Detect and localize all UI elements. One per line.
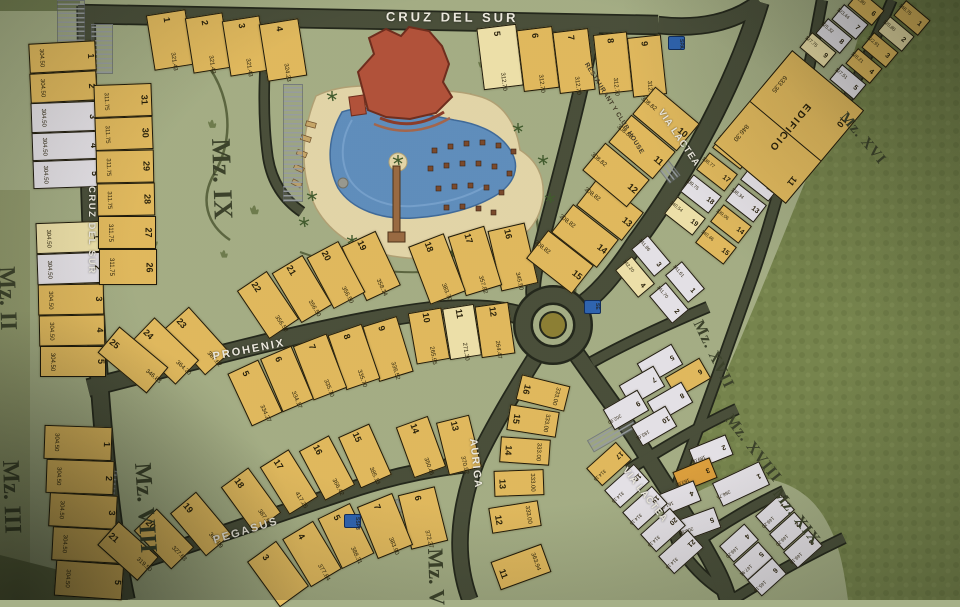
lot-measure: 383.70 xyxy=(440,283,452,302)
lot-measure: 141.61 xyxy=(670,265,683,279)
lot-measure: 312.70 xyxy=(499,72,507,91)
lot-number: 7 xyxy=(566,35,576,41)
lot-number: 16 xyxy=(311,443,324,456)
lot-number: 4 xyxy=(868,68,875,76)
lot: 311.7530 xyxy=(94,116,153,151)
lot-measure: 138.77 xyxy=(700,158,715,171)
lot-measure: 388.31 xyxy=(349,546,362,565)
lot-measure: 308.82 xyxy=(533,240,551,256)
lot: 304.501 xyxy=(43,425,112,461)
block-label: Mz. V xyxy=(424,548,448,606)
lot-number: 7 xyxy=(650,375,657,383)
lot: 311.7531 xyxy=(93,83,152,118)
lot-number: 21 xyxy=(107,531,120,544)
lot-number: 3 xyxy=(261,553,271,562)
lot-number: 2 xyxy=(672,308,680,315)
lot-number: 3 xyxy=(107,510,116,515)
lot-measure: 308.82 xyxy=(558,214,576,230)
lot-measure: 139.06 xyxy=(714,210,729,223)
lot-number: 9 xyxy=(377,325,387,332)
lot-number: 14 xyxy=(503,445,513,456)
lot-number: 10 xyxy=(661,414,671,424)
edificio-measure: 633.35 xyxy=(770,74,788,93)
lot-measure: 312.70 xyxy=(573,76,581,95)
lot-number: 15 xyxy=(570,269,583,282)
lot-number: 1 xyxy=(162,17,172,23)
lot-measure: 304.50 xyxy=(49,352,55,370)
lot-number: 12 xyxy=(487,306,497,317)
lot-number: 11 xyxy=(454,308,464,319)
lot-number: 9 xyxy=(634,399,641,407)
lot-measure: 311.75 xyxy=(108,258,114,276)
lot-measure: 304.50 xyxy=(64,569,71,588)
lot-measure: 311.75 xyxy=(103,92,110,110)
lot-measure: 304.50 xyxy=(38,49,45,68)
lot-measure: 304.50 xyxy=(58,501,65,520)
lot-number: 3 xyxy=(704,466,710,474)
lot-number: 5 xyxy=(113,579,122,585)
lot-number: 16 xyxy=(502,228,513,240)
lot-measure: 314.16 xyxy=(627,511,641,524)
lot-number: 5 xyxy=(852,84,859,92)
lot-number: 5 xyxy=(757,550,765,558)
edificio-measure: 846.30 xyxy=(732,122,750,141)
lot-measure: 141.86 xyxy=(636,239,649,253)
lot-measure: 333.00 xyxy=(523,505,532,524)
lot-measure: 304.50 xyxy=(61,535,68,554)
lot-measure: 311.75 xyxy=(104,125,111,143)
lot-number: 13 xyxy=(497,478,506,488)
lot-number: 31 xyxy=(139,95,148,105)
lot-measure: 335.70 xyxy=(356,369,368,388)
lot-number: 11 xyxy=(497,568,509,580)
lot-number: 5 xyxy=(241,369,251,377)
lot-number: 7 xyxy=(854,24,861,32)
lot-measure: 357.82 xyxy=(477,275,488,294)
lot-measure: 304.50 xyxy=(45,229,52,248)
lot-measure: 149.20 xyxy=(773,532,787,545)
lot-measure: 128.21 xyxy=(849,53,863,66)
lot-number: 28 xyxy=(142,194,151,204)
lot: 304.502 xyxy=(29,70,97,103)
lot-number: 27 xyxy=(143,227,152,237)
lot: 12264.47 xyxy=(475,302,516,358)
lot-measure: 304.50 xyxy=(47,291,53,309)
lot: 304.504 xyxy=(32,131,100,161)
lot-measure: 120.80 xyxy=(851,0,865,8)
lot-measure: 311.75 xyxy=(105,158,111,176)
lot-number: 18 xyxy=(423,241,435,254)
block-label: Mz. III xyxy=(0,460,25,534)
pier xyxy=(393,166,400,238)
lot: 13333.00 xyxy=(494,469,545,497)
lot-number: 24 xyxy=(141,328,154,341)
utility-marker-icon: SE xyxy=(584,300,601,314)
lot-measure: 304.50 xyxy=(46,260,53,279)
lot-number: 17 xyxy=(462,232,474,244)
lot: 304.501 xyxy=(28,40,96,73)
lot: 304.503 xyxy=(30,101,98,133)
lot-number: 21 xyxy=(686,538,696,548)
lot: 304.502 xyxy=(45,459,114,495)
lot: 304.503 xyxy=(38,283,105,315)
lot-measure: 314.16 xyxy=(645,533,659,546)
lot-number: 2 xyxy=(200,20,210,26)
lot-measure: 327.63 xyxy=(170,545,187,562)
lot-measure: 364.30 xyxy=(174,360,191,377)
lot-measure: 383.90 xyxy=(387,537,399,556)
lot-number: 12 xyxy=(493,514,503,525)
lot-measure: 358.14 xyxy=(375,278,388,297)
lot-number: 9 xyxy=(822,52,829,60)
lot-number: 18 xyxy=(705,196,715,206)
lot-number: 10 xyxy=(420,312,431,323)
lot-number: 8 xyxy=(342,333,352,341)
lot-number: 6 xyxy=(771,566,779,574)
club-house-building xyxy=(358,27,452,119)
lot-number: 20 xyxy=(320,249,333,262)
lot-number: 19 xyxy=(181,502,194,515)
lot-number: 12 xyxy=(626,182,639,195)
lot-number: 16 xyxy=(521,383,532,395)
lot-number: 13 xyxy=(449,420,460,432)
lot-measure: 377.84 xyxy=(316,563,331,582)
lot-number: 1 xyxy=(916,20,923,28)
lot-measure: 149.20 xyxy=(759,514,773,527)
lot-measure: 145.15 xyxy=(751,578,765,591)
lot-measure: 312.70 xyxy=(612,77,620,96)
block-label: Mz. II xyxy=(0,266,20,331)
lot-number: 3 xyxy=(237,23,247,29)
lot-number: 21 xyxy=(284,264,297,277)
lot-number: 13 xyxy=(750,205,760,215)
lot-number: 11 xyxy=(652,154,665,167)
lot-measure: 122.91 xyxy=(865,37,879,50)
lot-measure: 356.50 xyxy=(307,299,322,318)
lot-number: 14 xyxy=(595,243,608,256)
lot-measure: 385.13 xyxy=(367,466,380,485)
lot-measure: 304.50 xyxy=(42,165,49,184)
lot-measure: 314.16 xyxy=(663,555,677,568)
lot-measure: 334.27 xyxy=(258,404,271,423)
lot-measure: 308.82 xyxy=(583,187,601,203)
lot-number: 1 xyxy=(688,287,696,294)
lot-measure: 202.90 xyxy=(606,412,621,423)
lot: 14333.00 xyxy=(499,436,551,465)
lot-number: 3 xyxy=(94,296,103,301)
lot-measure: 149.20 xyxy=(723,544,737,557)
lot-measure: 333.00 xyxy=(550,386,560,405)
lot-measure: 123.44 xyxy=(835,9,849,22)
lot-measure: 304.50 xyxy=(39,79,46,98)
lot-measure: 304.50 xyxy=(41,137,48,156)
lot-measure: 304.50 xyxy=(53,433,60,452)
block-label: Mz. VIII xyxy=(130,462,160,554)
lot-number: 19 xyxy=(689,218,699,228)
lot-number: 17 xyxy=(272,458,285,471)
lot-number: 4 xyxy=(296,532,306,541)
lot-number: 3 xyxy=(884,52,891,60)
lot-measure: 141.70 xyxy=(654,286,667,300)
roundabout xyxy=(523,295,583,355)
lot-measure: 319.50 xyxy=(135,557,153,574)
lot-number: 25 xyxy=(107,338,120,351)
lot-number: 30 xyxy=(140,128,149,138)
lot-measure: 125.32 xyxy=(819,23,833,36)
lot: 304.503 xyxy=(48,492,118,530)
lot-number: 6 xyxy=(530,33,540,39)
lot-number: 5 xyxy=(709,515,715,523)
lot-measure: 304.50 xyxy=(55,467,62,486)
lot-measure: 363.94 xyxy=(529,552,541,571)
lot-measure: 138.34 xyxy=(729,189,744,202)
lot-number: 15 xyxy=(511,413,521,424)
utility-marker-icon: SSP3 xyxy=(344,514,361,528)
lot-measure: 333.00 xyxy=(534,443,541,462)
lot-measure: 333.00 xyxy=(541,413,550,432)
lot-number: 23 xyxy=(175,317,188,330)
lot-number: 13 xyxy=(620,216,633,229)
block-label: Mz. IX xyxy=(207,138,237,220)
lot-number: 17 xyxy=(721,174,731,184)
lot-number: 17 xyxy=(614,450,624,460)
lot-number: 3 xyxy=(654,261,662,268)
lot-measure: 356.50 xyxy=(340,286,354,305)
lot-number: 6 xyxy=(696,367,703,375)
lot-measure: 139.75 xyxy=(684,180,699,193)
lot: 304.505 xyxy=(33,159,101,189)
lot-measure: 147.91 xyxy=(737,562,751,575)
lot-measure: 370.92 xyxy=(459,456,469,475)
edificio-lot-number: 11 xyxy=(786,175,799,188)
lot: 311.7526 xyxy=(99,249,157,285)
lot-measure: 120.80 xyxy=(881,21,895,34)
lot-number: 6 xyxy=(870,10,877,18)
lot-measure: 308.82 xyxy=(639,96,657,112)
lot-measure: 417.25 xyxy=(293,491,308,510)
lot-measure: 356.50 xyxy=(273,315,288,334)
lot: 311.7529 xyxy=(96,149,155,183)
street-name-label: CRUZ DEL SUR xyxy=(386,10,519,24)
lot-number: 29 xyxy=(141,161,150,171)
lot-measure: 308.82 xyxy=(589,152,607,168)
lot-measure: 372.27 xyxy=(423,530,433,549)
lot: 311.7528 xyxy=(97,182,156,216)
marker-label: SSP3 xyxy=(354,517,360,530)
lot-measure: 140.54 xyxy=(668,202,683,215)
lot-measure: 336.52 xyxy=(389,361,400,380)
lot-number: 1 xyxy=(86,53,95,58)
lot-number: 19 xyxy=(355,239,367,252)
lot-number: 2 xyxy=(900,36,907,44)
lot-measure: 314.16 xyxy=(591,467,605,480)
lot-measure: 193.61 xyxy=(634,428,649,439)
lot: 9312.70 xyxy=(627,34,667,97)
lot-measure: 314.16 xyxy=(609,489,623,502)
lot-number: 18 xyxy=(232,477,245,490)
lot-measure: 334.17 xyxy=(290,391,303,410)
marker-label: SE xyxy=(594,303,600,310)
lot-number: 22 xyxy=(249,281,262,294)
lot-number: 5 xyxy=(332,513,342,521)
lot-measure: 149.14 xyxy=(787,550,801,563)
lot-number: 8 xyxy=(838,38,845,46)
street-name-label: CRUZ DEL SUR xyxy=(87,186,97,275)
lot-number: 5 xyxy=(492,31,502,37)
lot-number: 2 xyxy=(720,443,726,451)
lot-number: 1 xyxy=(102,441,111,446)
lot-measure: 311.75 xyxy=(107,224,113,242)
lot: 311.7527 xyxy=(98,216,156,249)
lot-measure: 148.75 xyxy=(897,5,911,18)
lot-measure: 142.20 xyxy=(620,260,633,274)
lot: 304.505 xyxy=(54,560,124,601)
lot-number: 14 xyxy=(735,226,745,236)
lot-number: 14 xyxy=(408,422,420,434)
lot-number: 7 xyxy=(372,503,382,511)
lot-number: 7 xyxy=(307,343,317,351)
hatch-texture xyxy=(283,84,303,202)
lot-number: 15 xyxy=(351,431,363,444)
lot: 304.504 xyxy=(39,314,106,346)
lot-number: 4 xyxy=(743,532,751,540)
marker-label: SPA xyxy=(678,39,684,49)
lot-number: 2 xyxy=(104,475,113,480)
lot-measure: 345.50 xyxy=(514,272,524,291)
lot-number: 8 xyxy=(606,38,615,44)
edificio-label: EDIFICIO xyxy=(766,101,812,153)
lot-measure: 127.51 xyxy=(833,69,847,82)
lot-number: 15 xyxy=(720,247,730,257)
lot-number: 4 xyxy=(95,327,104,332)
lot-measure: 266.75 xyxy=(715,487,730,498)
lot-number: 4 xyxy=(688,489,694,497)
lot-number: 26 xyxy=(144,262,153,272)
lot-measure: 312.70 xyxy=(537,74,545,93)
lot-number: 8 xyxy=(678,391,685,399)
lot-measure: 350.45 xyxy=(422,457,434,476)
lot-number: 5 xyxy=(668,353,675,361)
lot-number: 9 xyxy=(640,41,649,47)
lot-number: 4 xyxy=(638,282,646,289)
lot-number: 6 xyxy=(413,495,423,502)
lot-number: 6 xyxy=(273,355,283,363)
lot-number: 4 xyxy=(275,26,285,32)
site-map: 304.501304.502304.503304.504304.505304.5… xyxy=(0,0,960,600)
lot-measure: 366.42 xyxy=(330,478,344,497)
lot-measure: 335.70 xyxy=(322,379,334,398)
lot-measure: 140.46 xyxy=(699,231,714,244)
utility-marker-icon: SPA xyxy=(668,36,685,50)
lot-number: 5 xyxy=(96,359,105,364)
lot-measure: 304.50 xyxy=(48,322,54,340)
lot: 304.505 xyxy=(40,346,106,377)
lot-measure: 346.83 xyxy=(144,369,162,385)
lot-measure: 311.75 xyxy=(106,191,112,209)
lot-measure: 304.50 xyxy=(40,108,47,127)
lot-measure: 333.00 xyxy=(528,473,535,492)
lot-measure: 127.75 xyxy=(803,37,817,50)
